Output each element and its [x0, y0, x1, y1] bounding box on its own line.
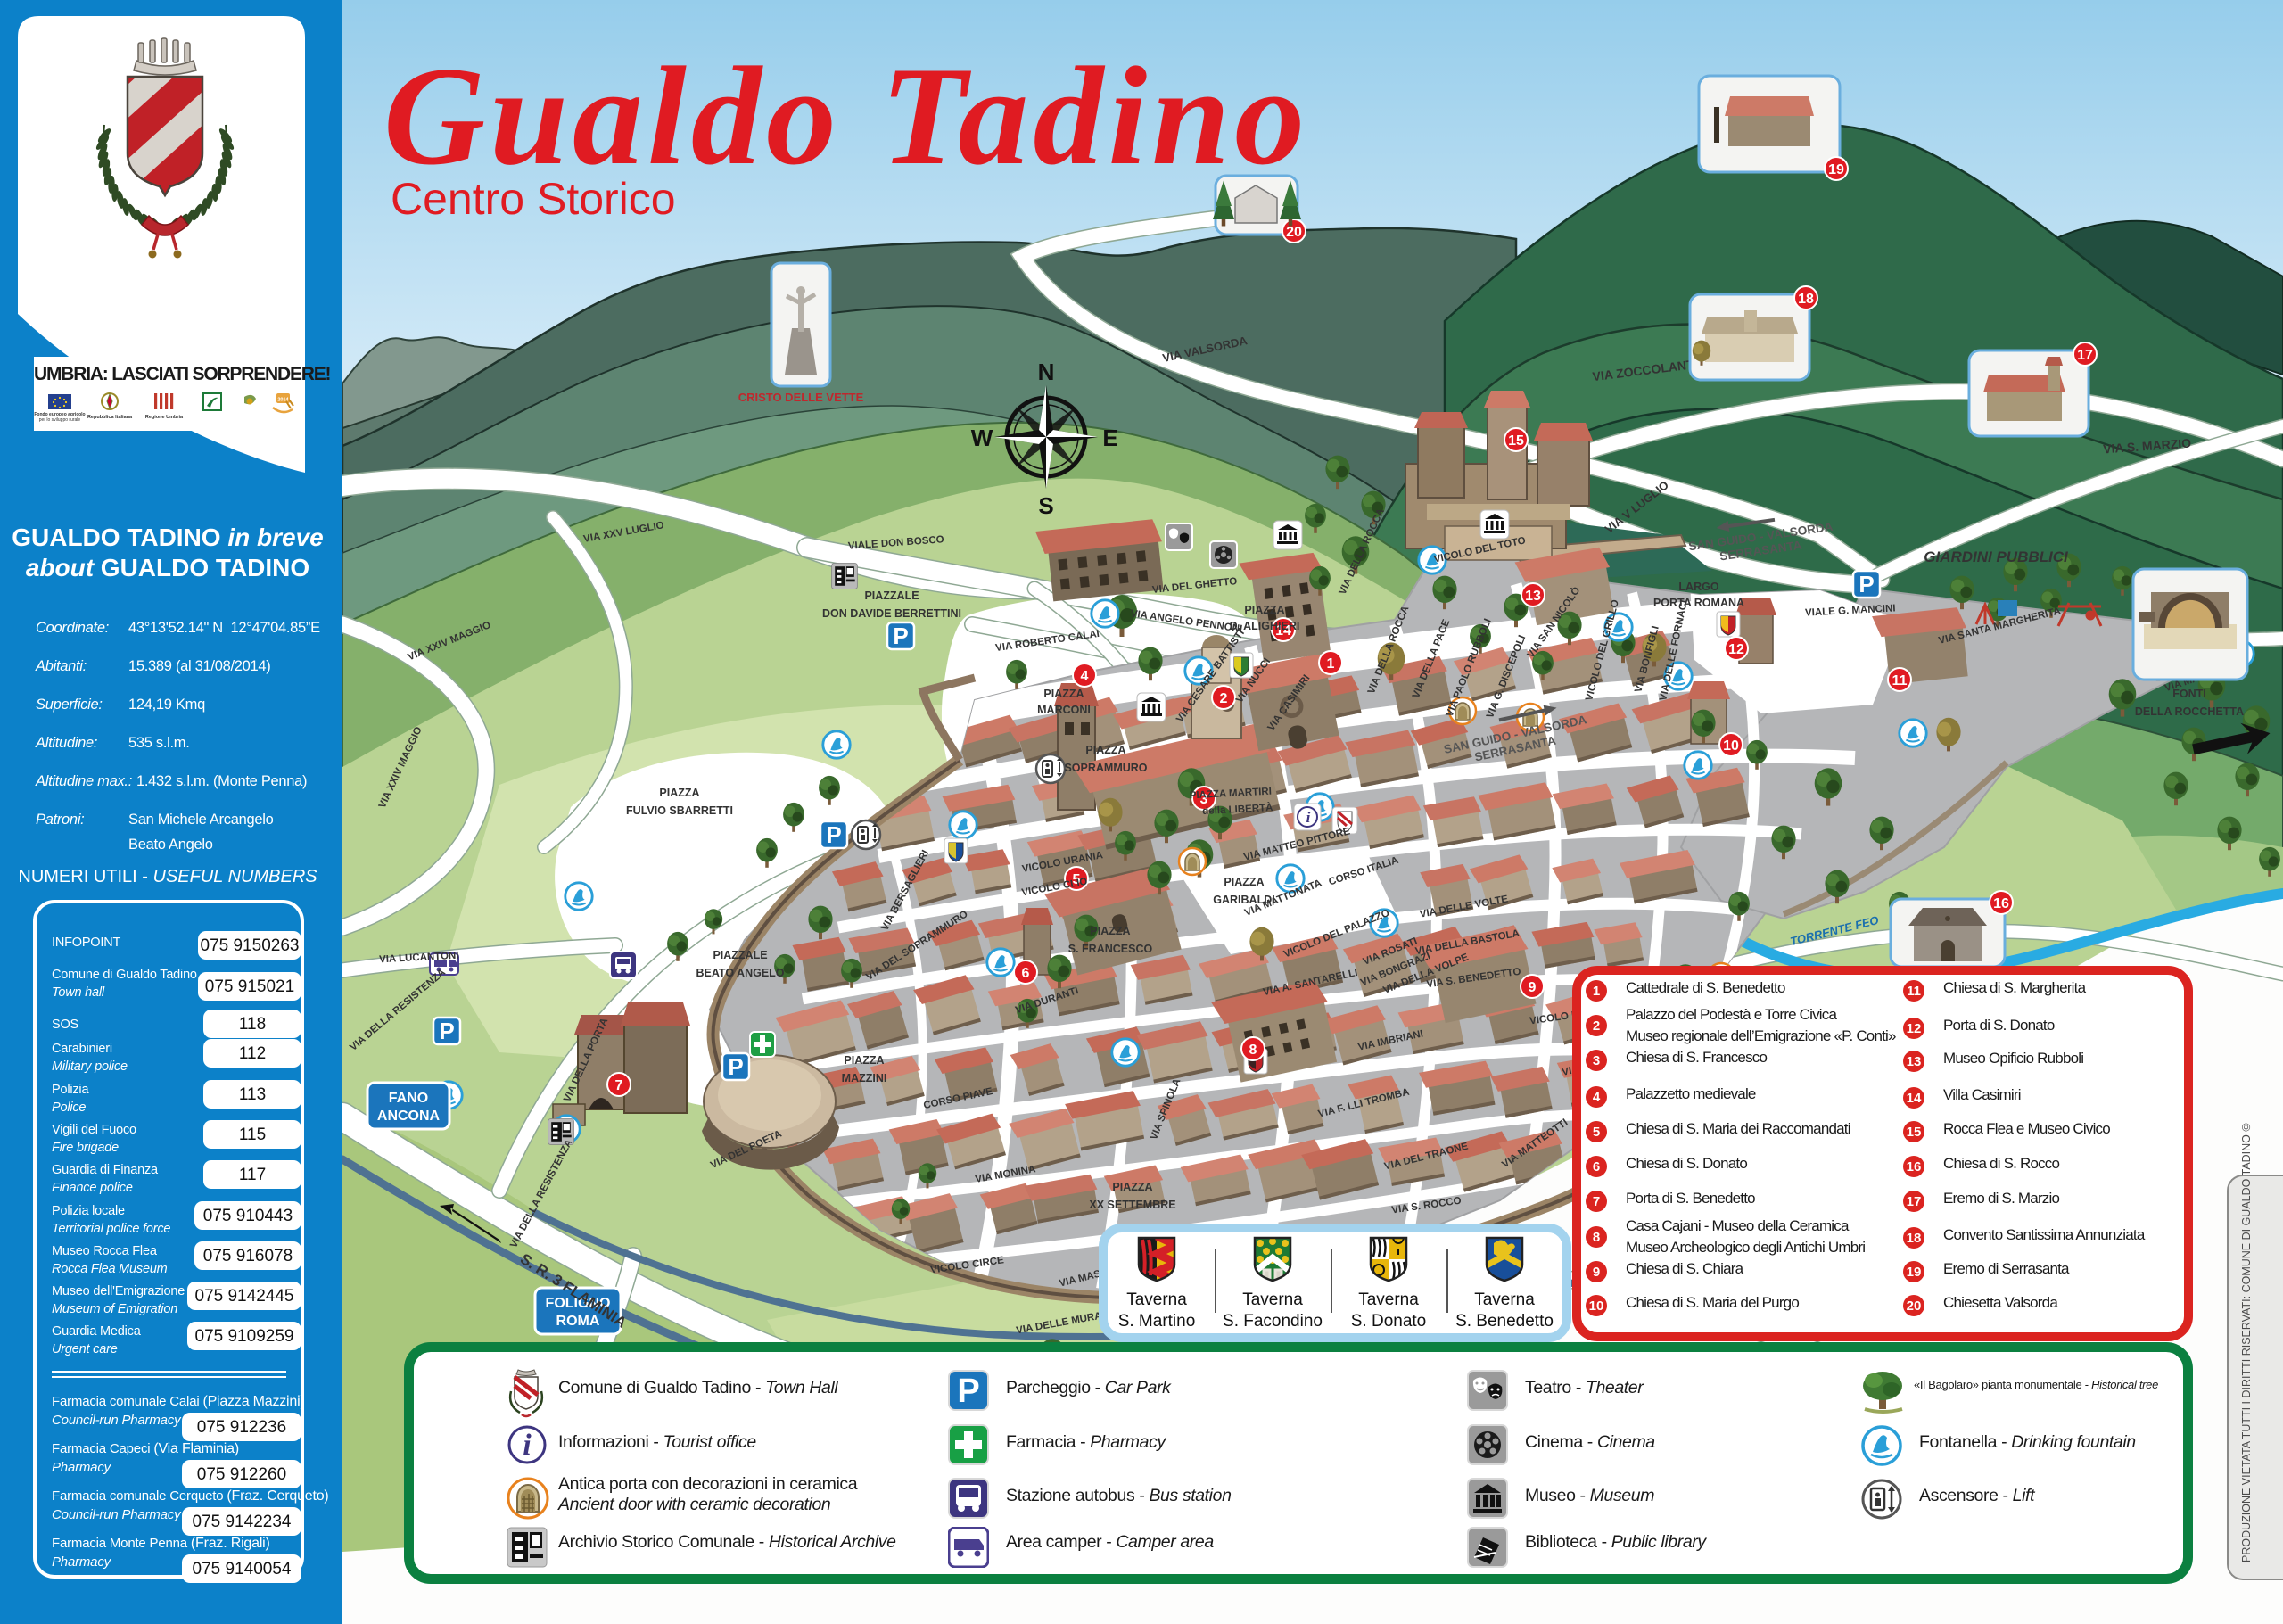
- svg-text:12: 12: [1728, 642, 1744, 657]
- svg-text:DELLA ROCCHETTA: DELLA ROCCHETTA: [2135, 705, 2244, 718]
- svg-text:ROMA: ROMA: [556, 1314, 600, 1329]
- svg-text:BEATO ANGELO: BEATO ANGELO: [696, 967, 784, 979]
- svg-text:XX SETTEMBRE: XX SETTEMBRE: [1089, 1199, 1175, 1211]
- svg-text:P: P: [957, 1373, 979, 1410]
- svg-text:13: 13: [1525, 589, 1541, 604]
- svg-text:PIAZZA: PIAZZA: [1112, 1181, 1152, 1193]
- svg-text:15: 15: [1508, 433, 1524, 449]
- svg-text:DON DAVIDE BERRETTINI: DON DAVIDE BERRETTINI: [822, 607, 961, 620]
- svg-text:20: 20: [1286, 225, 1302, 240]
- svg-text:MARCONI: MARCONI: [1037, 704, 1091, 716]
- svg-text:PORTA ROMANA: PORTA ROMANA: [1653, 597, 1744, 609]
- svg-text:17: 17: [2077, 348, 2093, 363]
- svg-text:i: i: [1306, 809, 1311, 826]
- svg-text:9: 9: [1529, 980, 1537, 995]
- svg-text:SOPRAMMURO: SOPRAMMURO: [1064, 762, 1147, 774]
- svg-text:7: 7: [615, 1078, 623, 1093]
- svg-text:PIAZZALE: PIAZZALE: [713, 949, 767, 961]
- svg-text:PIAZZALE: PIAZZALE: [864, 589, 919, 602]
- svg-text:1: 1: [1327, 656, 1335, 672]
- svg-text:E: E: [1102, 425, 1117, 451]
- svg-text:10: 10: [1723, 738, 1739, 754]
- svg-text:2: 2: [1220, 691, 1228, 706]
- svg-text:6: 6: [1022, 966, 1030, 981]
- svg-text:per lo sviluppo rurale: per lo sviluppo rurale: [39, 417, 81, 423]
- svg-text:PIAZZA: PIAZZA: [1224, 876, 1264, 888]
- svg-text:PIAZZA: PIAZZA: [1043, 688, 1084, 700]
- svg-text:FULVIO SBARRETTI: FULVIO SBARRETTI: [626, 804, 733, 817]
- svg-text:FANO: FANO: [389, 1091, 428, 1106]
- svg-text:FONTI: FONTI: [2172, 688, 2206, 700]
- svg-text:MAZZINI: MAZZINI: [842, 1072, 887, 1084]
- svg-text:W: W: [971, 425, 993, 451]
- svg-text:D. ALIGHIERI: D. ALIGHIERI: [1230, 620, 1300, 632]
- svg-text:LARGO: LARGO: [1678, 581, 1718, 593]
- svg-text:S: S: [1038, 492, 1053, 519]
- svg-text:CRISTO DELLE VETTE: CRISTO DELLE VETTE: [738, 391, 864, 404]
- svg-text:PIAZZA: PIAZZA: [659, 787, 699, 799]
- svg-text:4: 4: [1081, 669, 1089, 684]
- svg-text:N: N: [1038, 359, 1055, 385]
- svg-text:16: 16: [1993, 896, 2009, 911]
- svg-text:18: 18: [1798, 292, 1814, 307]
- svg-text:PIAZZA: PIAZZA: [844, 1054, 884, 1067]
- svg-text:PIAZZA: PIAZZA: [1244, 604, 1284, 616]
- svg-text:8: 8: [1249, 1043, 1257, 1058]
- svg-text:Regione Umbria: Regione Umbria: [145, 415, 184, 420]
- svg-text:11: 11: [1892, 673, 1908, 688]
- svg-text:S. FRANCESCO: S. FRANCESCO: [1068, 943, 1153, 955]
- svg-text:GIARDINI PUBBLICI: GIARDINI PUBBLICI: [1924, 548, 2069, 565]
- svg-text:2014: 2014: [277, 398, 289, 403]
- svg-text:PIAZZA: PIAZZA: [1085, 744, 1125, 756]
- svg-text:ANCONA: ANCONA: [377, 1109, 441, 1124]
- svg-text:PIAZZA: PIAZZA: [1090, 925, 1130, 937]
- svg-text:i: i: [523, 1429, 532, 1462]
- svg-text:Repubblica Italiana: Repubblica Italiana: [87, 415, 133, 420]
- svg-text:19: 19: [1828, 162, 1844, 177]
